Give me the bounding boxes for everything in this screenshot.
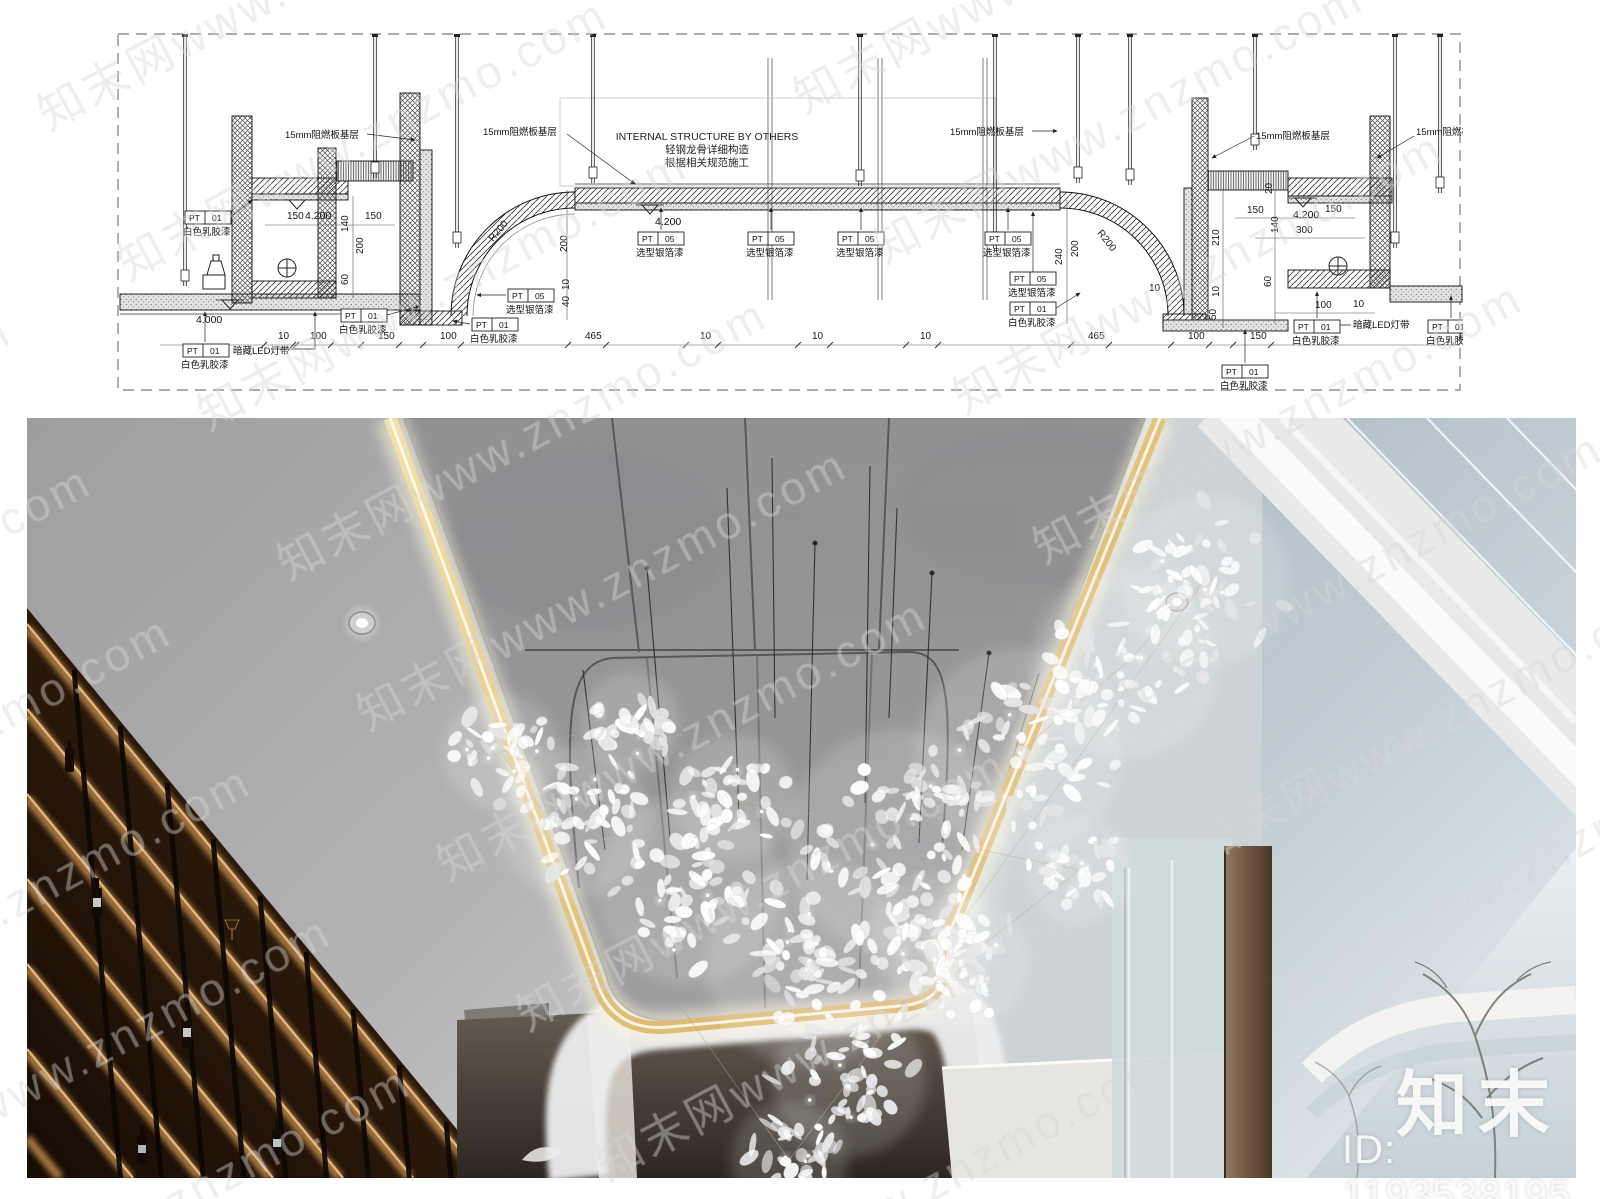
rod-anchor (454, 34, 460, 37)
annotation-text: 200 (559, 235, 570, 252)
rod-bracket (1391, 232, 1399, 243)
sparkle (535, 749, 539, 753)
annotation-text: 150 (1250, 331, 1267, 342)
annotation-text: 300 (1296, 225, 1313, 236)
leaf (1026, 858, 1032, 871)
annotation-text: 150 (287, 211, 304, 222)
annotation-text: 4.200 (655, 216, 681, 228)
annotation-text: PT (345, 311, 356, 321)
leaf (710, 804, 722, 818)
annotation-text: 01 (212, 213, 222, 223)
sparkle (575, 797, 579, 801)
rod-anchor (182, 34, 188, 37)
sparkle (847, 1084, 851, 1088)
sparkle (1079, 870, 1083, 874)
annotation-text: R200 (1095, 228, 1119, 254)
rod-bracket (589, 167, 597, 178)
annotation-text: 100 (440, 331, 457, 342)
leaf (1011, 820, 1016, 833)
sparkle (1080, 862, 1084, 866)
sparkle (920, 946, 924, 950)
annotation-text: 01 (499, 320, 509, 330)
annotation-text: 白色乳胶漆 (339, 324, 387, 336)
annotation-text: 10 (700, 331, 712, 342)
annotation-text: 200 (355, 237, 366, 254)
annotation-text: PT (842, 234, 853, 244)
sparkle (1136, 656, 1140, 660)
rod-bracket (1126, 169, 1134, 180)
sparkle (1160, 559, 1164, 563)
rod-anchor (1127, 34, 1133, 37)
annotation-text: PT (187, 346, 198, 356)
annotation-text: 01 (1037, 304, 1047, 314)
annotation-text: 暗藏LED灯带 (233, 345, 290, 357)
sparkle (487, 756, 491, 760)
annotation-text: 4.200 (305, 210, 331, 222)
leaf (1099, 895, 1104, 909)
sparkle (1220, 591, 1224, 595)
annotation-text: PT (1014, 274, 1025, 284)
annotation-text: 根据相关规范施工 (665, 156, 749, 169)
sparkle (1003, 795, 1007, 799)
ceiling-detail-svg: 15mm阻燃板基层15mm阻燃板基层15mm阻燃板基层15mm阻燃板基层15mm… (115, 28, 1463, 396)
sparkle (849, 1115, 853, 1119)
annotation-text: 100 (1188, 331, 1205, 342)
sparkle (807, 958, 811, 962)
sparkle (944, 947, 948, 951)
sparkle (815, 942, 819, 946)
sparkle (871, 843, 875, 847)
annotation-text: 60 (340, 273, 351, 285)
annotation-text: 选型银箔漆 (636, 247, 684, 259)
sparkle (1095, 662, 1099, 666)
sparkle (465, 748, 469, 752)
sparkle (512, 770, 516, 774)
annotation-text: 05 (1037, 274, 1047, 284)
leaf (906, 895, 919, 908)
rod-bracket (1074, 167, 1082, 178)
annotation-text: INTERNAL STRUCTURE BY OTHERS (616, 131, 799, 143)
sparkle (603, 809, 607, 813)
annotation-text: 白色乳胶漆 (470, 333, 518, 345)
sparkle (1018, 751, 1022, 755)
annotation-text: 选型银箔漆 (1008, 287, 1056, 299)
sparkle (535, 820, 539, 824)
sparkle (788, 929, 792, 933)
annotation-text: 100 (310, 331, 327, 342)
wood-column (1225, 846, 1272, 1178)
annotation-text: PT (642, 234, 653, 244)
sparkle (808, 1098, 812, 1102)
sparkle (553, 823, 557, 827)
annotation-text: 100 (1315, 300, 1332, 311)
rod-bracket (453, 232, 461, 243)
interior-render-svg (27, 418, 1576, 1178)
annotation-text: 轻钢龙骨详细构造 (665, 143, 749, 156)
cluster-glow (443, 694, 560, 811)
annotation-text: 20 (1264, 182, 1275, 194)
rod-bracket (181, 270, 189, 281)
annotation-text: PT (989, 234, 1000, 244)
annotation-text: PT (189, 213, 200, 223)
annotation-text: 4.200 (1293, 209, 1319, 221)
sparkle (598, 713, 602, 717)
sparkle (626, 720, 630, 724)
sparkle (672, 948, 676, 952)
annotation-text: 01 (210, 346, 220, 356)
annotation-text: 05 (1012, 234, 1022, 244)
annotation-text: 150 (365, 211, 382, 222)
sparkle (807, 1154, 811, 1158)
leaf (1048, 736, 1064, 741)
annotation-text: 10 (1211, 285, 1222, 297)
sparkle (669, 889, 673, 893)
annotation-text: PT (752, 234, 763, 244)
rod-anchor (1392, 34, 1398, 37)
sparkle (786, 940, 790, 944)
annotation-text: 05 (775, 234, 785, 244)
sparkle (1016, 735, 1020, 739)
sparkle (636, 752, 640, 756)
rod-anchor (590, 34, 596, 37)
annotation-text: PT (512, 291, 523, 301)
leaf (863, 1048, 882, 1059)
annotation-text: PT (1432, 322, 1443, 332)
leaf (945, 1010, 955, 1019)
annotation-text: 选型银箔漆 (746, 247, 794, 259)
annotation-text: PT (1298, 322, 1309, 332)
sparkle (491, 746, 495, 750)
interior-render-photo (27, 418, 1576, 1178)
sparkle (727, 779, 731, 783)
sparkle (593, 778, 597, 782)
rod-anchor (857, 34, 863, 37)
sparkle (1008, 713, 1012, 717)
sparkle (1158, 589, 1162, 593)
annotation-text: 10 (1149, 283, 1161, 294)
sparkle (958, 748, 962, 752)
annotation-text: PT (476, 320, 487, 330)
sparkle (1123, 655, 1127, 659)
annotation-text: 白色乳胶漆 (1292, 335, 1340, 347)
ceiling-detail-drawing: 15mm阻燃板基层15mm阻燃板基层15mm阻燃板基层15mm阻燃板基层15mm… (115, 28, 1463, 396)
annotation-text: 15mm阻燃板基层 (483, 126, 557, 138)
annotation-text: 40 (561, 295, 572, 307)
annotation-text: 05 (865, 234, 875, 244)
sparkle (618, 725, 622, 729)
annotation-text: 白色乳胶漆 (181, 359, 229, 371)
annotation-text: 240 (1054, 248, 1065, 265)
sparkle (962, 874, 966, 878)
annotation-text: 10 (812, 331, 824, 342)
sparkle (658, 899, 662, 903)
annotation-text: 140 (340, 215, 351, 232)
annotation-text: 05 (535, 291, 545, 301)
sparkle (783, 1156, 787, 1160)
annotation-text: 选型银箔漆 (983, 247, 1031, 259)
annotation-text: 暗藏LED灯带 (1353, 319, 1410, 331)
annotation-text: 05 (665, 234, 675, 244)
rod-anchor (372, 34, 378, 37)
rod-anchor (1437, 34, 1443, 37)
sparkle (706, 893, 710, 897)
sparkle (1079, 884, 1083, 888)
sparkle (692, 795, 696, 799)
annotation-text: 200 (1070, 240, 1081, 257)
sparkle (1085, 866, 1089, 870)
annotation-text: 10 (278, 331, 290, 342)
rod-bracket (856, 170, 864, 181)
elevation-triangle (289, 200, 305, 209)
annotation-text: 01 (1249, 367, 1259, 377)
annotation-text: 465 (1088, 331, 1105, 342)
sparkle (639, 734, 643, 738)
annotation-text: 选型银箔漆 (506, 304, 554, 316)
annotation-text: 150 (1247, 205, 1264, 216)
page: 15mm阻燃板基层15mm阻燃板基层15mm阻燃板基层15mm阻燃板基层15mm… (0, 0, 1600, 1199)
annotation-text: 210 (1211, 229, 1222, 246)
annotation-text: 01 (1455, 322, 1463, 332)
sparkle (737, 819, 741, 823)
annotation-text: 60 (1263, 275, 1274, 287)
annotation-text: 465 (585, 331, 602, 342)
rod-bracket (371, 162, 379, 173)
sparkle (910, 817, 914, 821)
annotation-text: 15mm阻燃板基层 (950, 126, 1024, 138)
sparkle (736, 768, 740, 772)
hanger-rods (181, 34, 1444, 286)
leaf (877, 786, 889, 794)
annotation-text: 50 (1208, 308, 1219, 320)
annotation-text: 15mm阻燃板基层 (1416, 126, 1463, 138)
sparkle (1175, 572, 1179, 576)
annotation-text: 01 (1321, 322, 1331, 332)
sparkle (760, 810, 764, 814)
rod-anchor (1252, 34, 1258, 37)
annotation-text: 白色乳胶漆 (1008, 317, 1056, 329)
annotation-text: 选型银箔漆 (836, 247, 884, 259)
annotation-text: 10 (1353, 299, 1365, 310)
sparkle (901, 952, 905, 956)
sparkle (1052, 875, 1056, 879)
sparkle (1203, 588, 1207, 592)
leaf (809, 1076, 821, 1086)
annotation-text: PT (1226, 367, 1237, 377)
annotation-text: 4.000 (196, 314, 222, 326)
annotation-text: PT (1014, 304, 1025, 314)
annotation-text: 白色乳胶漆 (183, 226, 231, 238)
annotation-text: 01 (368, 311, 378, 321)
annotation-text: 140 (1270, 216, 1281, 233)
annotation-text: 150 (1325, 204, 1342, 215)
sparkle (807, 912, 811, 916)
rod-anchor (992, 34, 998, 37)
annotation-text: 15mm阻燃板基层 (1256, 130, 1330, 142)
sparkle (933, 958, 937, 962)
structure (120, 58, 1462, 331)
rod-anchor (1075, 34, 1081, 37)
annotation-text: 10 (561, 278, 572, 290)
watermark-text: 知末网www.znzmo.com (0, 295, 22, 610)
annotation-text: 白色乳胶漆 (1220, 380, 1268, 392)
annotation-text: 白色乳胶漆 (1426, 335, 1463, 347)
sparkle (832, 1054, 836, 1058)
sparkle (838, 1063, 842, 1067)
annotation-text: 10 (920, 331, 932, 342)
annotation-text: 15mm阻燃板基层 (285, 129, 359, 141)
rod-bracket (1436, 177, 1444, 188)
sparkle (953, 949, 957, 953)
sparkle (1099, 674, 1103, 678)
